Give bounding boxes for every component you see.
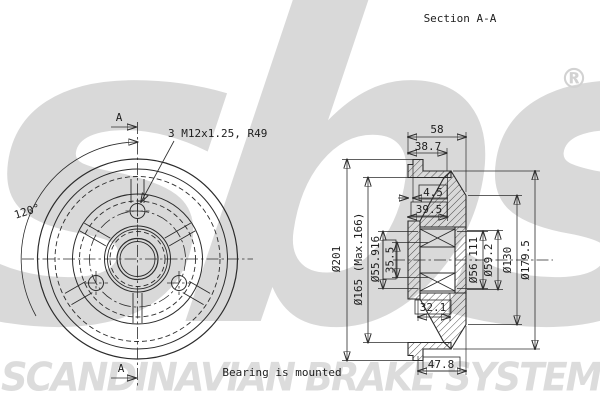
dim-shoulder-dia: Ø179.5 xyxy=(519,240,532,280)
rim-wall-top xyxy=(408,160,451,178)
dim-bore-dia: 35.5 xyxy=(384,247,397,274)
technical-drawing-page: sbs ® SCANDINAVIAN BRAKE SYSTEMS xyxy=(0,0,600,400)
section-marker-bottom: A xyxy=(118,362,125,375)
dim-outer-dia: Ø201 xyxy=(330,246,343,273)
hub-rear-wall xyxy=(455,227,466,293)
dim-friction-dia: Ø165 (Max.166) xyxy=(352,213,365,306)
dim-bearing-dia: Ø56.111 xyxy=(467,237,480,283)
front-view-drum xyxy=(21,127,237,378)
dim-lip-width: 4.5 xyxy=(423,186,443,199)
angle-label: 120° xyxy=(13,201,42,222)
section-title: Section A-A xyxy=(424,12,497,25)
dim-seal-dia: Ø55.916 xyxy=(369,236,382,282)
hub-front-wall xyxy=(408,221,420,299)
dim-total-width: 58 xyxy=(430,123,443,136)
bearing-lower xyxy=(420,273,455,291)
bolt-thread-label: 3 M12x1.25, R49 xyxy=(168,127,267,140)
section-cut-markers xyxy=(111,127,136,378)
bolt-leader-line xyxy=(141,141,174,202)
dim-flange-dia: Ø130 xyxy=(501,247,514,274)
bearing-upper xyxy=(420,229,455,247)
dim-hub-length: 47.8 xyxy=(428,358,455,371)
section-marker-top: A xyxy=(116,111,123,124)
dim-flange-width: 38.7 xyxy=(415,140,442,153)
brake-drum-drawing: Section A-A 3 M12x1.25, R49 120° A A Bea… xyxy=(0,0,600,400)
dim-housing-dia: Ø59.2 xyxy=(482,243,495,276)
dim-drum-depth: 39.5 xyxy=(416,203,443,216)
bearing-note: Bearing is mounted xyxy=(222,366,341,379)
dim-bearing-seat-depth: 32.1 xyxy=(420,301,447,314)
